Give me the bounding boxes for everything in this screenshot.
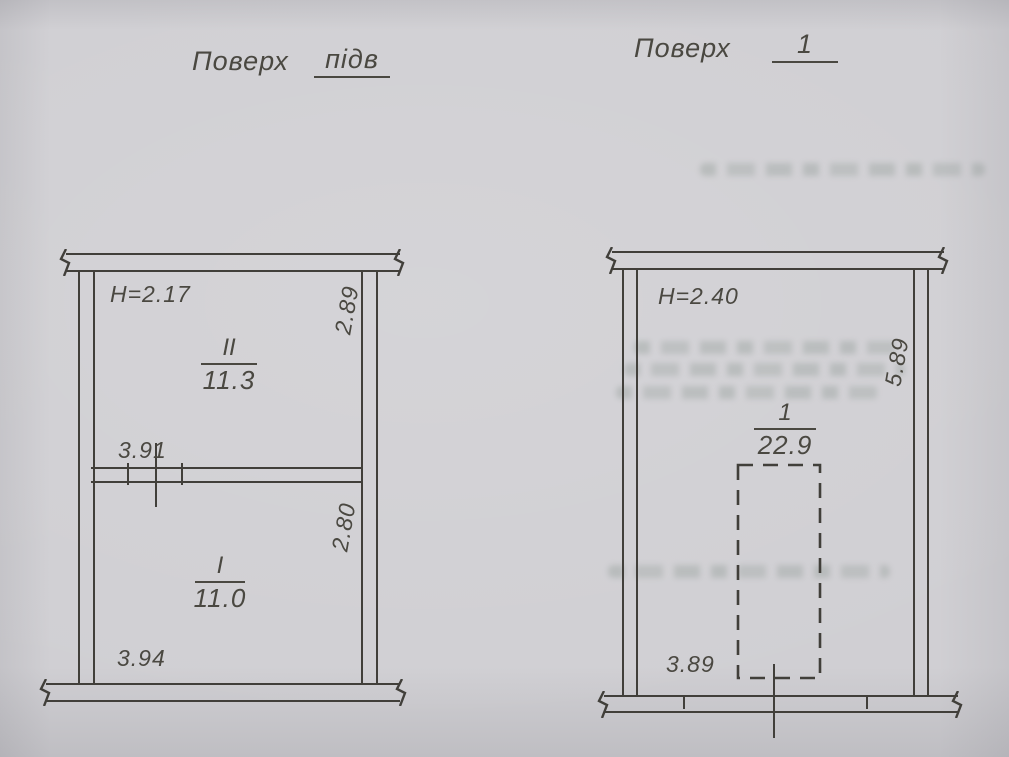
stair-opening-dashed-outline xyxy=(736,463,822,680)
wall-break-icon xyxy=(596,691,610,718)
room-number-area-label: I 11.0 xyxy=(190,554,250,612)
section-mark-line xyxy=(773,664,775,738)
room-number-area-label: II 11.3 xyxy=(198,336,260,394)
basement-title-value: підв xyxy=(314,44,390,78)
first-right-wall xyxy=(913,268,929,696)
ceiling-height-label: H=2.17 xyxy=(110,281,191,308)
wall-joint-tick xyxy=(683,695,685,709)
room-width-dim: 3.89 xyxy=(666,651,715,678)
bleed-through-text xyxy=(616,386,878,399)
bleed-through-text xyxy=(634,341,906,354)
wall-break-icon xyxy=(394,679,408,706)
door-jamb-tick xyxy=(127,463,129,485)
basement-top-wall xyxy=(66,253,400,272)
basement-middle-wall xyxy=(91,467,361,483)
basement-title-label: Поверх xyxy=(192,46,289,77)
scanned-sheet: Поверх підв H=2.17 2.89 II 11.3 3.91 xyxy=(0,0,1009,757)
wall-joint-tick xyxy=(866,695,868,709)
first-top-wall xyxy=(612,251,944,270)
room-depth-dim: 2.80 xyxy=(326,501,361,554)
wall-break-icon xyxy=(38,679,52,706)
room-number-area-label: 1 22.9 xyxy=(750,401,820,459)
first-title-value: 1 xyxy=(772,29,838,63)
room-area: 11.3 xyxy=(198,367,260,394)
room-width-dim: 3.91 xyxy=(118,437,167,464)
room-depth-dim: 2.89 xyxy=(329,284,364,337)
door-jamb-tick xyxy=(181,463,183,485)
first-title-label: Поверх xyxy=(634,33,731,64)
room-area: 22.9 xyxy=(750,432,820,459)
bleed-through-text xyxy=(700,163,985,176)
wall-break-icon xyxy=(604,247,618,274)
basement-right-wall xyxy=(361,270,378,684)
basement-bottom-wall xyxy=(46,683,400,702)
room-number: 1 xyxy=(750,401,820,425)
wall-break-icon xyxy=(58,249,72,276)
room-width-dim: 3.94 xyxy=(117,645,166,672)
room-number: II xyxy=(198,336,260,360)
ceiling-height-label: H=2.40 xyxy=(658,283,739,310)
wall-break-icon xyxy=(950,691,964,718)
first-bottom-wall xyxy=(604,695,958,713)
room-area: 11.0 xyxy=(190,585,250,612)
first-left-wall xyxy=(622,268,638,696)
wall-break-icon xyxy=(392,249,406,276)
wall-break-icon xyxy=(936,247,950,274)
bleed-through-text xyxy=(624,363,905,376)
room-number: I xyxy=(190,554,250,578)
